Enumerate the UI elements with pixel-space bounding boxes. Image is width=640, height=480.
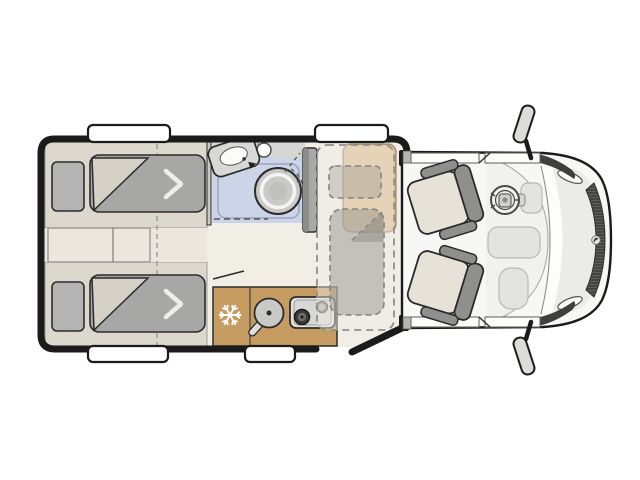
steering-wheel	[491, 186, 519, 214]
side-mirror-bottom	[512, 322, 536, 376]
single-bed-bottom	[52, 275, 205, 332]
pillow	[52, 162, 84, 211]
wardrobe-cabinet	[303, 148, 317, 232]
drop-down-bed	[317, 145, 394, 330]
cab	[402, 104, 611, 376]
motorhome-floorplan	[0, 0, 640, 480]
pillow	[52, 282, 84, 331]
door-hinge-bottom	[403, 317, 411, 329]
window-bedroom-top	[88, 125, 170, 142]
rear-bedroom	[45, 142, 207, 347]
dashboard-center-pad	[488, 227, 540, 258]
side-mirror-top	[512, 104, 536, 158]
bedroom-aisle	[45, 228, 207, 262]
window-bedroom-bottom	[88, 346, 168, 362]
drop-down-bed-pillow	[329, 166, 381, 198]
wheel-logo-icon	[502, 197, 507, 202]
single-bed-top	[52, 155, 205, 212]
door-hinge-top	[403, 151, 411, 163]
drain-dot	[267, 311, 272, 316]
bathroom	[206, 134, 308, 225]
window-lounge-top	[315, 125, 388, 142]
floorplan-canvas	[0, 0, 640, 480]
window-kitchen-bottom	[245, 346, 295, 362]
dashboard-lower-pad	[499, 268, 528, 309]
